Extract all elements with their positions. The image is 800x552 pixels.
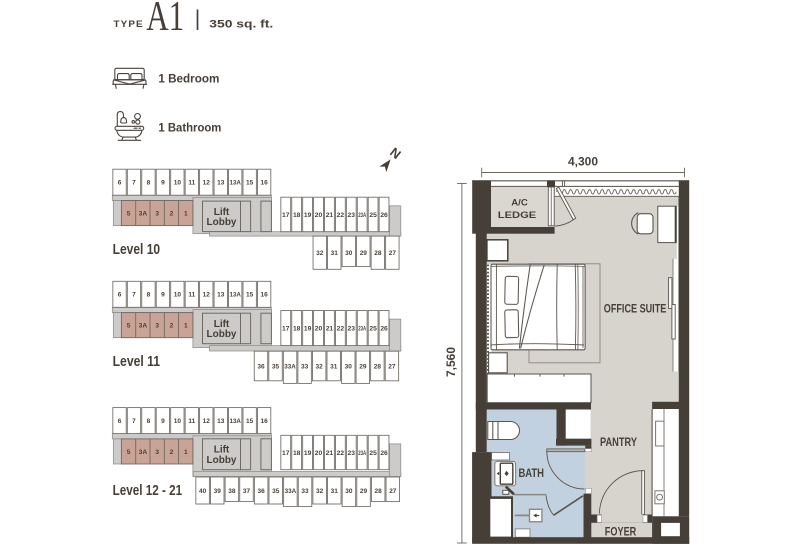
- svg-text:35: 35: [272, 488, 280, 495]
- svg-text:22: 22: [337, 212, 345, 219]
- svg-text:6: 6: [118, 180, 122, 187]
- svg-text:15: 15: [246, 292, 254, 299]
- svg-text:39: 39: [214, 488, 222, 495]
- svg-text:3: 3: [155, 449, 159, 456]
- svg-text:12: 12: [203, 418, 211, 425]
- svg-text:23A: 23A: [358, 212, 366, 219]
- svg-text:29: 29: [359, 363, 367, 370]
- svg-text:1 Bedroom: 1 Bedroom: [158, 71, 219, 85]
- svg-text:26: 26: [380, 325, 388, 332]
- svg-text:33A: 33A: [285, 488, 297, 495]
- svg-text:30: 30: [345, 250, 353, 257]
- svg-text:16: 16: [261, 292, 269, 299]
- svg-text:5: 5: [127, 210, 131, 217]
- svg-text:22: 22: [337, 325, 345, 332]
- svg-text:16: 16: [261, 180, 269, 187]
- svg-text:PANTRY: PANTRY: [600, 436, 637, 449]
- svg-text:31: 31: [330, 363, 338, 370]
- svg-text:12: 12: [203, 180, 211, 187]
- svg-text:33: 33: [301, 363, 309, 370]
- svg-text:22: 22: [337, 450, 345, 457]
- svg-text:23A: 23A: [358, 325, 366, 332]
- svg-text:35: 35: [272, 363, 280, 370]
- svg-text:3: 3: [155, 323, 159, 330]
- svg-text:2: 2: [170, 323, 174, 330]
- svg-text:13: 13: [217, 180, 225, 187]
- svg-text:21: 21: [326, 325, 334, 332]
- svg-text:7: 7: [132, 292, 136, 299]
- svg-text:A/C: A/C: [511, 197, 528, 208]
- svg-text:Level 12 - 21: Level 12 - 21: [113, 483, 183, 499]
- svg-text:27: 27: [388, 363, 396, 370]
- svg-text:13: 13: [217, 292, 225, 299]
- svg-text:Level 11: Level 11: [113, 354, 161, 370]
- svg-text:13A: 13A: [229, 418, 241, 425]
- svg-text:33A: 33A: [284, 363, 296, 370]
- svg-text:10: 10: [174, 180, 182, 187]
- svg-text:33: 33: [301, 488, 309, 495]
- svg-text:32: 32: [316, 250, 324, 257]
- svg-text:21: 21: [326, 212, 334, 219]
- svg-text:37: 37: [243, 488, 251, 495]
- svg-text:8: 8: [147, 292, 151, 299]
- svg-text:BATH: BATH: [519, 467, 545, 480]
- svg-text:20: 20: [315, 325, 323, 332]
- svg-text:Lobby: Lobby: [207, 455, 237, 466]
- svg-text:6: 6: [118, 292, 122, 299]
- svg-text:30: 30: [345, 363, 353, 370]
- svg-text:20: 20: [315, 450, 323, 457]
- svg-text:28: 28: [374, 363, 382, 370]
- svg-text:25: 25: [369, 325, 377, 332]
- svg-text:15: 15: [246, 418, 254, 425]
- svg-text:29: 29: [360, 488, 368, 495]
- svg-text:7: 7: [132, 418, 136, 425]
- svg-text:1: 1: [184, 449, 188, 456]
- svg-text:31: 31: [331, 250, 339, 257]
- svg-text:8: 8: [147, 418, 151, 425]
- svg-text:23A: 23A: [358, 450, 366, 457]
- svg-text:12: 12: [203, 292, 211, 299]
- svg-text:11: 11: [188, 292, 195, 299]
- svg-text:25: 25: [369, 450, 377, 457]
- svg-text:Lobby: Lobby: [207, 329, 237, 340]
- svg-text:13A: 13A: [229, 292, 241, 299]
- svg-text:31: 31: [331, 488, 339, 495]
- svg-text:7: 7: [132, 180, 136, 187]
- svg-text:17: 17: [282, 212, 290, 219]
- svg-text:TYPE: TYPE: [114, 19, 144, 29]
- svg-text:21: 21: [326, 450, 334, 457]
- svg-text:17: 17: [282, 325, 290, 332]
- svg-text:8: 8: [147, 180, 151, 187]
- svg-text:1: 1: [184, 323, 188, 330]
- svg-text:5: 5: [127, 323, 131, 330]
- svg-text:Lobby: Lobby: [207, 217, 237, 228]
- svg-text:5: 5: [127, 449, 131, 456]
- svg-text:19: 19: [304, 450, 312, 457]
- svg-text:27: 27: [389, 488, 397, 495]
- svg-text:23: 23: [348, 450, 356, 457]
- svg-text:350 sq. ft.: 350 sq. ft.: [209, 18, 273, 30]
- svg-text:LEDGE: LEDGE: [498, 209, 537, 220]
- svg-text:16: 16: [261, 418, 269, 425]
- svg-text:13A: 13A: [229, 180, 241, 187]
- svg-text:36: 36: [257, 363, 265, 370]
- svg-text:3A: 3A: [139, 210, 148, 217]
- svg-text:1: 1: [184, 210, 188, 217]
- svg-text:32: 32: [316, 488, 324, 495]
- svg-text:10: 10: [174, 292, 182, 299]
- svg-text:23: 23: [348, 212, 356, 219]
- svg-text:2: 2: [170, 210, 174, 217]
- svg-text:13: 13: [217, 418, 225, 425]
- svg-text:3A: 3A: [139, 323, 148, 330]
- svg-text:9: 9: [161, 292, 165, 299]
- svg-text:40: 40: [199, 488, 207, 495]
- svg-text:18: 18: [293, 450, 301, 457]
- svg-text:A1: A1: [146, 0, 184, 40]
- svg-text:23: 23: [348, 325, 356, 332]
- svg-text:OFFICE SUITE: OFFICE SUITE: [604, 303, 667, 316]
- svg-text:17: 17: [282, 450, 290, 457]
- svg-text:28: 28: [375, 488, 383, 495]
- svg-text:18: 18: [293, 212, 301, 219]
- svg-text:4,300: 4,300: [568, 155, 598, 168]
- svg-text:20: 20: [315, 212, 323, 219]
- svg-text:9: 9: [161, 180, 165, 187]
- svg-text:Level 10: Level 10: [113, 242, 161, 258]
- svg-text:1 Bathroom: 1 Bathroom: [158, 121, 221, 135]
- svg-text:10: 10: [174, 418, 182, 425]
- svg-text:6: 6: [118, 418, 122, 425]
- svg-text:N: N: [387, 144, 404, 162]
- svg-text:32: 32: [316, 363, 324, 370]
- svg-text:27: 27: [389, 250, 397, 257]
- svg-text:25: 25: [369, 212, 377, 219]
- svg-text:FOYER: FOYER: [605, 525, 637, 538]
- svg-text:7,560: 7,560: [445, 347, 458, 377]
- svg-text:28: 28: [374, 250, 382, 257]
- svg-text:18: 18: [293, 325, 301, 332]
- svg-text:3: 3: [155, 210, 159, 217]
- svg-text:26: 26: [380, 450, 388, 457]
- svg-text:38: 38: [228, 488, 236, 495]
- svg-text:29: 29: [360, 250, 368, 257]
- svg-text:3A: 3A: [139, 449, 148, 456]
- svg-text:36: 36: [258, 488, 266, 495]
- svg-text:19: 19: [304, 325, 312, 332]
- svg-text:15: 15: [246, 180, 254, 187]
- svg-text:11: 11: [188, 418, 195, 425]
- svg-text:30: 30: [345, 488, 353, 495]
- svg-text:19: 19: [304, 212, 312, 219]
- svg-text:2: 2: [170, 449, 174, 456]
- svg-text:11: 11: [188, 180, 195, 187]
- svg-text:9: 9: [161, 418, 165, 425]
- svg-text:26: 26: [380, 212, 388, 219]
